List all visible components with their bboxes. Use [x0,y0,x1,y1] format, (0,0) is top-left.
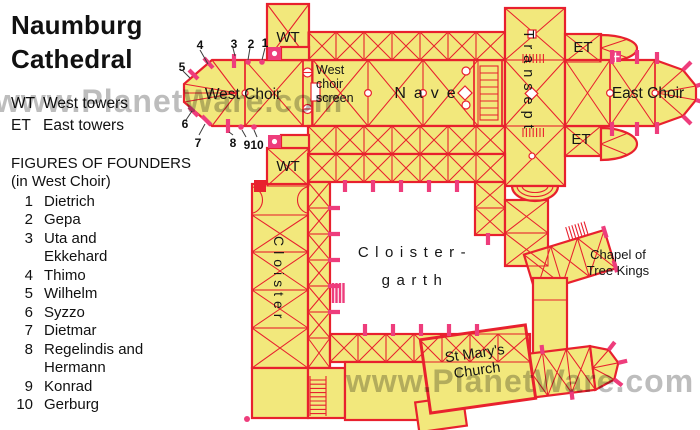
founders-subheading: (in West Choir) [11,173,229,190]
naumburg-cathedral-plan: Naumburg Cathedral WT West towers ET Eas… [0,0,700,430]
label-west-choir-screen-l1: West [316,63,378,77]
figure-number-3: 3 [227,37,241,51]
founder-num: 3 [11,230,33,267]
founder-row: 2Gepa [11,211,229,230]
label-chapel-l1: Chapel of [572,247,664,262]
founder-name: Uta and Ekkehard [44,230,144,267]
figure-number-7: 7 [191,136,205,150]
founder-row: 1Dietrich [11,193,229,212]
watermark-top: www.PlanetWare.com [0,83,343,120]
founder-name: Dietrich [44,193,144,212]
label-et-south: ET [563,131,599,148]
founder-num: 2 [11,211,33,230]
watermark-bottom: www.PlanetWare.com [346,363,694,400]
founder-row: 5Wilhelm [11,285,229,304]
founder-num: 6 [11,304,33,323]
founder-num: 5 [11,285,33,304]
founder-name: Thimo [44,267,144,286]
founder-name: Regelindis and Hermann [44,341,144,378]
figure-number-10: 10 [248,138,266,152]
label-wt-north: WT [267,29,309,46]
label-et-north: ET [565,39,601,56]
founder-row: 3Uta and Ekkehard [11,230,229,267]
founder-name: Syzzo [44,304,144,323]
figure-number-4: 4 [193,38,207,52]
founder-row: 9Konrad [11,378,229,397]
label-east-choir: East Choir [598,85,698,103]
founder-name: Gerburg [44,396,144,415]
info-panel: Naumburg Cathedral WT West towers ET Eas… [11,8,229,415]
label-wt-south: WT [267,158,309,175]
figure-number-8: 8 [226,136,240,150]
founder-row: 6Syzzo [11,304,229,323]
label-nave: Nave [374,85,484,103]
founder-num: 7 [11,322,33,341]
founder-name: Wilhelm [44,285,144,304]
founder-name: Gepa [44,211,144,230]
founder-row: 8Regelindis and Hermann [11,341,229,378]
founder-row: 4Thimo [11,267,229,286]
founder-row: 10Gerburg [11,396,229,415]
founder-num: 9 [11,378,33,397]
label-cloister-garth-l2: garth [340,272,490,289]
label-cloister-garth-l1: Cloister- [340,244,490,261]
founders-list: 1Dietrich 2Gepa 3Uta and Ekkehard 4Thimo… [11,193,229,415]
figure-number-5: 5 [175,60,189,74]
figure-number-2: 2 [244,37,258,51]
founders-heading: FIGURES OF FOUNDERS [11,155,229,172]
label-cloister: Cloister [271,236,287,323]
founder-num: 8 [11,341,33,378]
founder-num: 4 [11,267,33,286]
label-chapel-l2: Tree Kings [570,263,666,278]
founder-name: Konrad [44,378,144,397]
founder-num: 10 [11,396,33,415]
connector-corridor [533,278,567,354]
founder-name: Dietmar [44,322,144,341]
label-transept: Transept [520,30,536,135]
founder-row: 7Dietmar [11,322,229,341]
founder-num: 1 [11,193,33,212]
figure-number-1: 1 [258,36,272,50]
